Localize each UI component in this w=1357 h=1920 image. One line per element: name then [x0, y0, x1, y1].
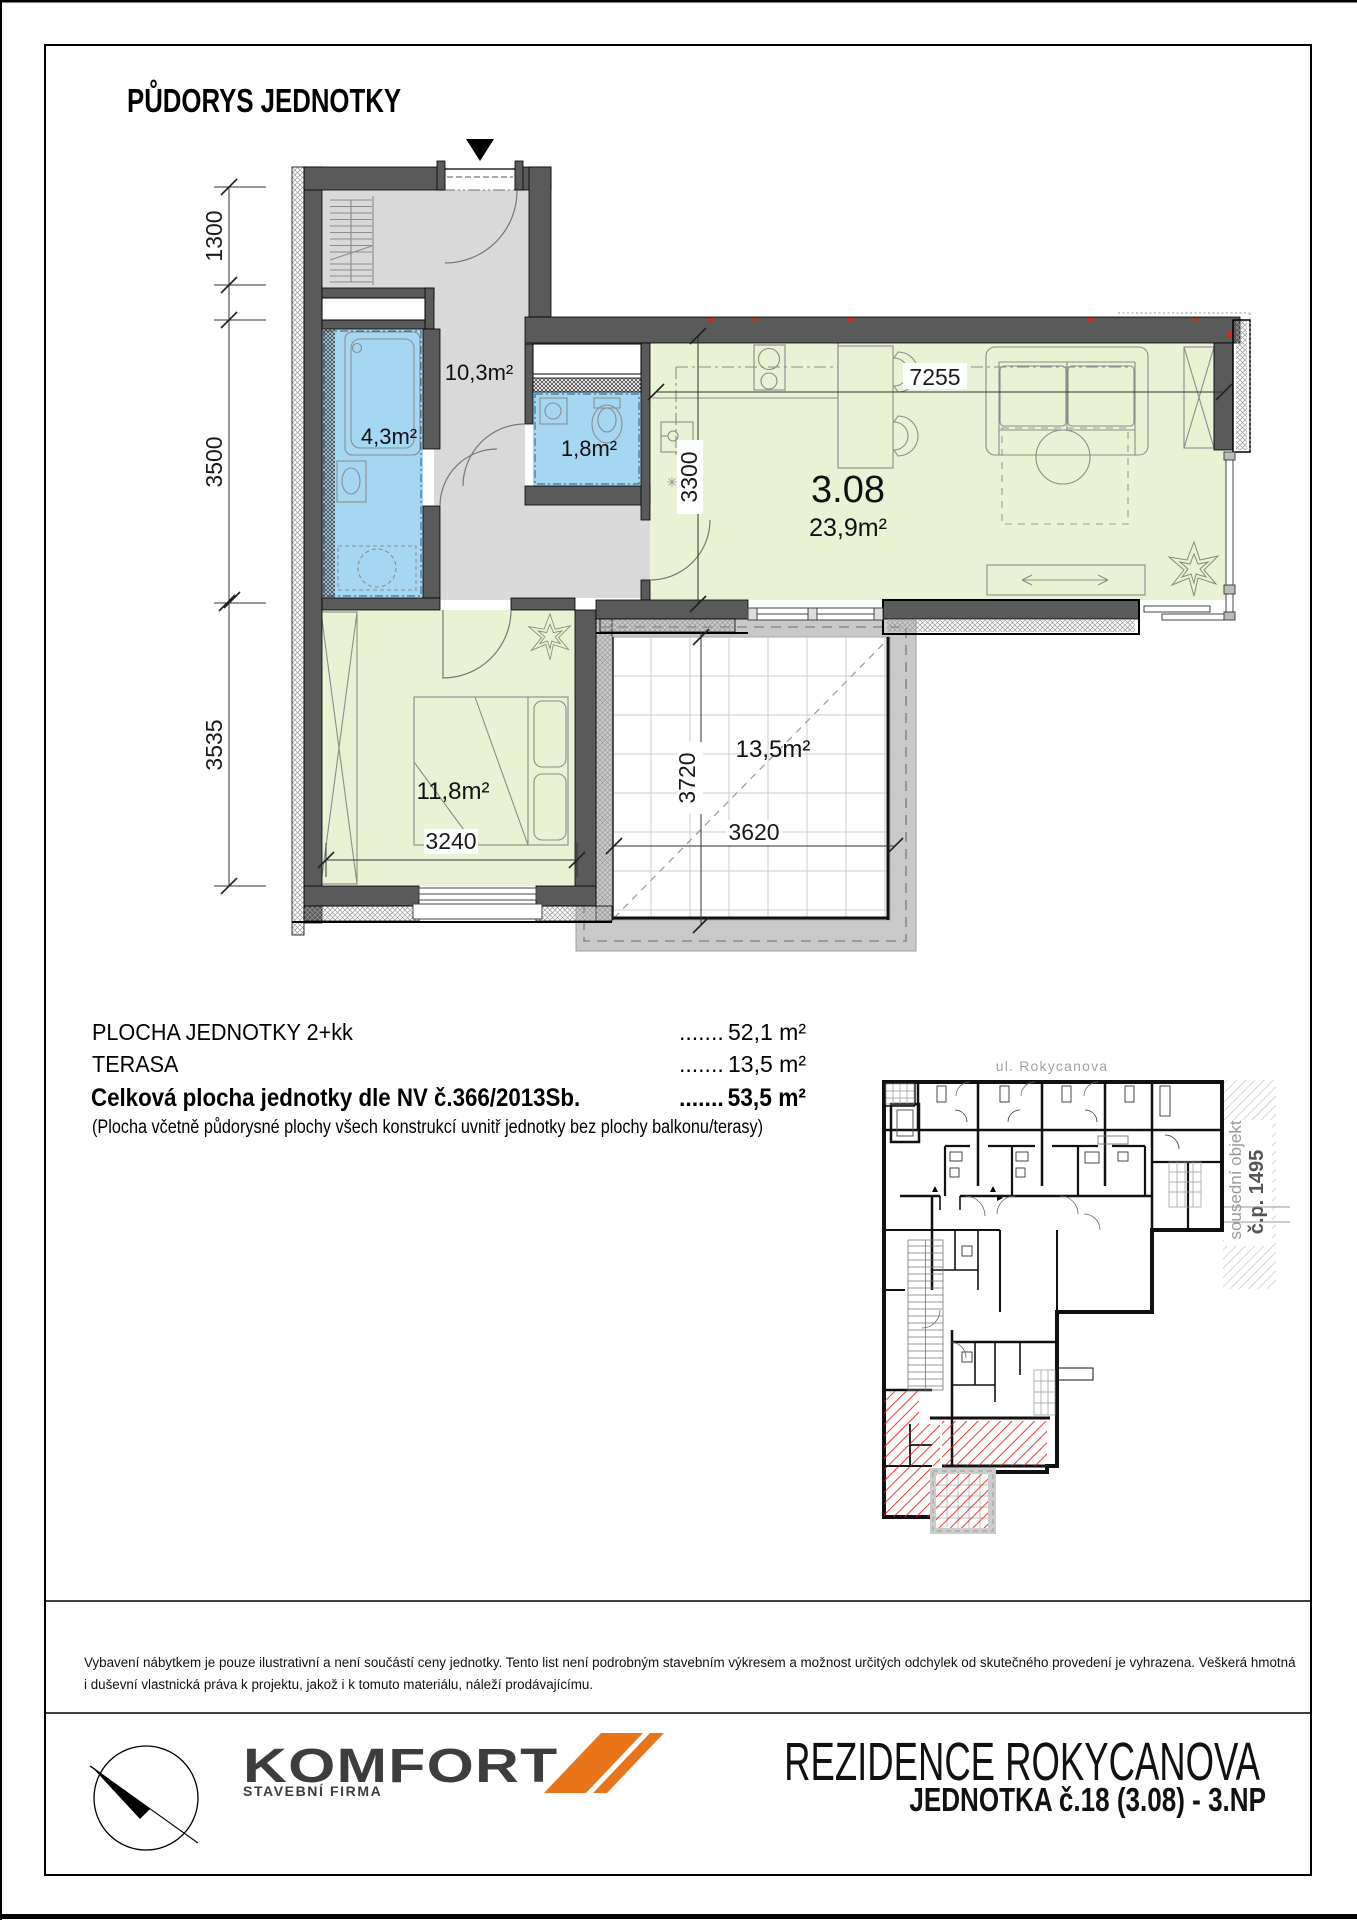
- svg-text:3500: 3500: [201, 436, 227, 487]
- svg-text:7255: 7255: [909, 364, 960, 390]
- svg-text:Celková plocha jednotky dle NV: Celková plocha jednotky dle NV č.366/201…: [91, 1085, 580, 1112]
- svg-text:Vybavení nábytkem je pouze ilu: Vybavení nábytkem je pouze ilustrativní …: [84, 1655, 1296, 1670]
- svg-text:STAVEBNÍ FIRMA: STAVEBNÍ FIRMA: [243, 1783, 382, 1799]
- svg-text:3240: 3240: [425, 828, 476, 854]
- svg-text:52,1 m²: 52,1 m²: [728, 1019, 806, 1045]
- svg-text:JEDNOTKA č.18 (3.08) - 3.NP: JEDNOTKA č.18 (3.08) - 3.NP: [909, 1782, 1266, 1819]
- svg-text:23,9m²: 23,9m²: [809, 514, 887, 542]
- svg-text:3535: 3535: [201, 719, 227, 770]
- svg-text:3.08: 3.08: [811, 469, 885, 511]
- svg-text:TERASA: TERASA: [92, 1051, 179, 1077]
- svg-text:PLOCHA JEDNOTKY 2+kk: PLOCHA JEDNOTKY 2+kk: [92, 1019, 354, 1045]
- svg-text:53,5 m²: 53,5 m²: [728, 1084, 806, 1112]
- svg-text:i duševní vlastnická práva k p: i duševní vlastnická práva k projektu, j…: [84, 1677, 593, 1692]
- svg-text:11,8m²: 11,8m²: [417, 778, 490, 805]
- svg-text:13,5m²: 13,5m²: [736, 736, 811, 763]
- svg-text:13,5 m²: 13,5 m²: [728, 1051, 806, 1077]
- svg-text:3620: 3620: [728, 819, 779, 845]
- svg-text:ul. Rokycanova: ul. Rokycanova: [996, 1058, 1109, 1074]
- svg-text:(Plocha včetně půdorysné ploch: (Plocha včetně půdorysné plochy všech ko…: [92, 1116, 763, 1137]
- svg-text:.......: .......: [679, 1085, 724, 1111]
- svg-text:1,8m²: 1,8m²: [561, 436, 617, 461]
- svg-text:4,3m²: 4,3m²: [361, 424, 417, 449]
- svg-text:3720: 3720: [674, 752, 700, 803]
- svg-text:PŮDORYS JEDNOTKY: PŮDORYS JEDNOTKY: [127, 80, 401, 120]
- svg-text:.......: .......: [679, 1019, 724, 1045]
- svg-text:10,3m²: 10,3m²: [445, 360, 513, 385]
- svg-text:1300: 1300: [201, 210, 227, 261]
- svg-text:3300: 3300: [676, 451, 702, 502]
- svg-text:.......: .......: [679, 1051, 724, 1077]
